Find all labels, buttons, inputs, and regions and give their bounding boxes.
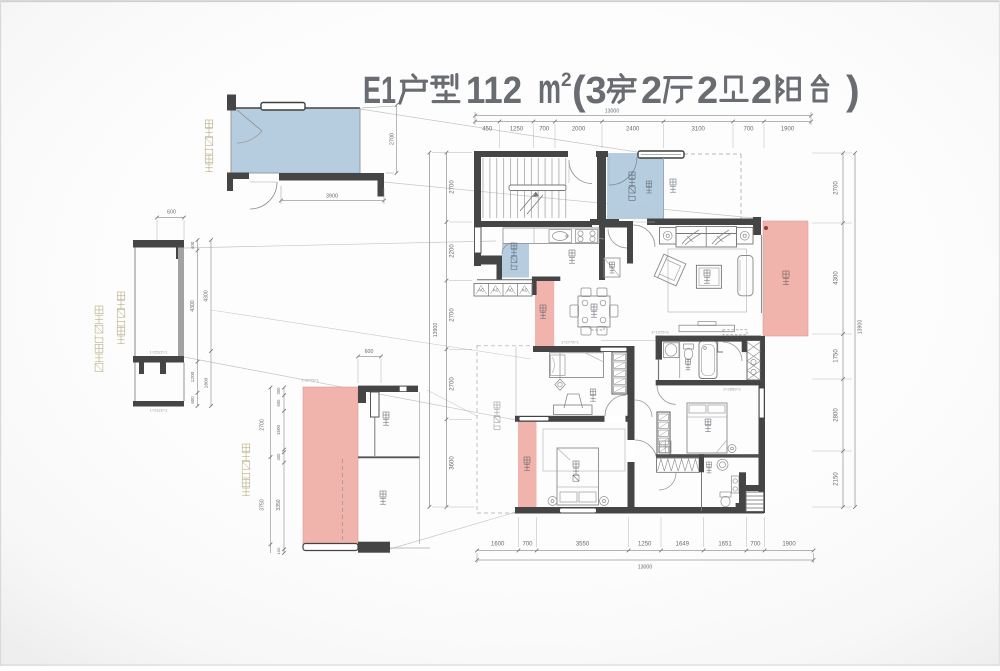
- svg-text:13900: 13900: [858, 320, 864, 335]
- svg-text:1250: 1250: [638, 542, 652, 548]
- svg-text:2700: 2700: [260, 419, 266, 431]
- svg-text:13000: 13000: [638, 565, 653, 571]
- svg-text:E1: E1: [363, 70, 396, 112]
- svg-text:700: 700: [522, 542, 533, 548]
- svg-text:3900: 3900: [326, 194, 338, 200]
- svg-text:AC: AC: [522, 288, 528, 293]
- svg-text:3550: 3550: [576, 542, 590, 548]
- svg-text:1250: 1250: [510, 127, 524, 133]
- svg-text:1600: 1600: [491, 542, 505, 548]
- svg-text:1=2850=1: 1=2850=1: [723, 387, 742, 392]
- svg-text:700: 700: [750, 542, 761, 548]
- svg-text:): ): [846, 67, 860, 113]
- svg-text:150: 150: [276, 547, 281, 554]
- svg-text:2: 2: [641, 70, 662, 112]
- svg-text:3: 3: [586, 70, 607, 112]
- svg-text:4300: 4300: [834, 271, 840, 285]
- svg-text:600: 600: [276, 399, 281, 407]
- svg-text:112: 112: [466, 70, 522, 112]
- svg-text:3100: 3100: [692, 127, 706, 133]
- svg-text:13000: 13000: [605, 109, 620, 115]
- svg-text:4300: 4300: [204, 290, 210, 302]
- svg-text:1=2322=1: 1=2322=1: [149, 408, 168, 413]
- svg-text:2700: 2700: [450, 308, 456, 322]
- svg-text:2200: 2200: [450, 244, 456, 258]
- svg-text:AC: AC: [493, 288, 499, 293]
- svg-text:m: m: [538, 65, 561, 112]
- svg-text:3600: 3600: [450, 456, 456, 470]
- svg-text:1900: 1900: [782, 542, 796, 548]
- svg-text:2150: 2150: [834, 472, 840, 486]
- svg-text:13900: 13900: [433, 323, 439, 338]
- svg-text:1200: 1200: [190, 371, 196, 382]
- svg-text:2400: 2400: [626, 127, 640, 133]
- svg-text:3750: 3750: [260, 499, 266, 511]
- svg-text:1800: 1800: [204, 377, 210, 388]
- svg-text:700: 700: [743, 127, 754, 133]
- svg-text:1651: 1651: [718, 542, 732, 548]
- svg-text:600: 600: [167, 210, 176, 216]
- svg-text:1649: 1649: [676, 542, 690, 548]
- svg-text:1900: 1900: [781, 127, 795, 133]
- svg-text:(: (: [572, 67, 586, 113]
- svg-text:2: 2: [697, 70, 718, 112]
- svg-text:2700: 2700: [390, 133, 396, 145]
- svg-text:2000: 2000: [572, 127, 586, 133]
- svg-text:2700: 2700: [834, 181, 840, 195]
- svg-text:600: 600: [190, 396, 195, 404]
- svg-text:1=2775=1: 1=2775=1: [561, 340, 580, 345]
- svg-text:AC: AC: [507, 288, 513, 293]
- svg-text:1=1375=1: 1=1375=1: [651, 330, 670, 335]
- svg-text:2: 2: [751, 70, 772, 112]
- svg-text:1=2522=1: 1=2522=1: [149, 350, 168, 355]
- svg-text:3350: 3350: [276, 499, 282, 510]
- svg-text:700: 700: [539, 127, 550, 133]
- svg-text:4300: 4300: [190, 300, 196, 312]
- svg-text:400: 400: [276, 453, 281, 461]
- svg-text:AC: AC: [478, 288, 484, 293]
- svg-text:600: 600: [365, 349, 374, 355]
- svg-text:2: 2: [561, 70, 572, 91]
- svg-text:450: 450: [482, 127, 493, 133]
- svg-text:2700: 2700: [450, 377, 456, 391]
- svg-text:300: 300: [276, 387, 281, 395]
- svg-text:400: 400: [190, 241, 195, 249]
- svg-text:1750: 1750: [834, 349, 840, 363]
- svg-text:1500: 1500: [276, 424, 281, 435]
- svg-text:2800: 2800: [834, 408, 840, 422]
- svg-text:2700: 2700: [450, 180, 456, 194]
- svg-text:1=2775=1: 1=2775=1: [301, 378, 320, 383]
